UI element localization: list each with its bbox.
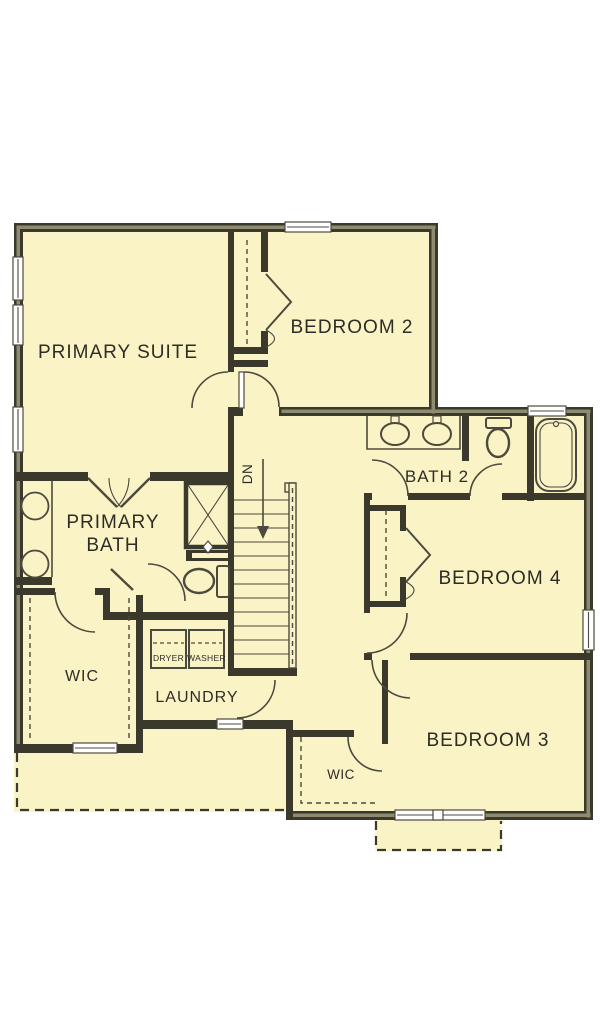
window xyxy=(73,743,117,753)
room-label-laundry: LAUNDRY xyxy=(155,689,238,706)
open-roof-area xyxy=(14,720,286,812)
window xyxy=(13,305,23,345)
room-label-primary-suite: PRIMARY SUITE xyxy=(38,342,198,363)
washer-box: WASHER xyxy=(187,630,226,668)
floor-plan-drawing: DN xyxy=(0,0,600,1024)
room-label-wic-primary: WIC xyxy=(65,668,99,685)
door-leaf-bedroom2 xyxy=(239,372,244,408)
sink-fixture xyxy=(21,493,49,520)
window xyxy=(217,719,243,729)
room-label-bath2: BATH 2 xyxy=(405,467,469,486)
dryer-label: DRYER xyxy=(153,653,184,663)
stairs-dn-label: DN xyxy=(240,464,255,485)
bathtub-fixture xyxy=(536,419,576,491)
window xyxy=(13,407,23,452)
room-label-primary-bath-line2: BATH xyxy=(86,535,139,556)
room-label-primary-bath-line1: PRIMARY xyxy=(66,512,159,533)
dryer-box: DRYER xyxy=(151,630,186,668)
toilet-fixture xyxy=(184,566,229,597)
room-label-bedroom3: BEDROOM 3 xyxy=(426,730,549,751)
toilet-fixture xyxy=(486,418,511,457)
floor-plan-page: DN xyxy=(0,0,600,1024)
room-label-bedroom2: BEDROOM 2 xyxy=(290,317,413,338)
room-label-bedroom4: BEDROOM 4 xyxy=(438,568,561,589)
window xyxy=(583,610,594,650)
window xyxy=(13,257,23,300)
washer-label: WASHER xyxy=(187,653,226,663)
porch-roof-area xyxy=(375,820,502,851)
shower-fixture xyxy=(186,483,230,553)
window xyxy=(528,406,566,416)
room-label-wic-bedroom3: WIC xyxy=(327,767,355,782)
window xyxy=(285,222,331,232)
sink-fixture xyxy=(21,551,49,578)
window xyxy=(395,810,485,820)
